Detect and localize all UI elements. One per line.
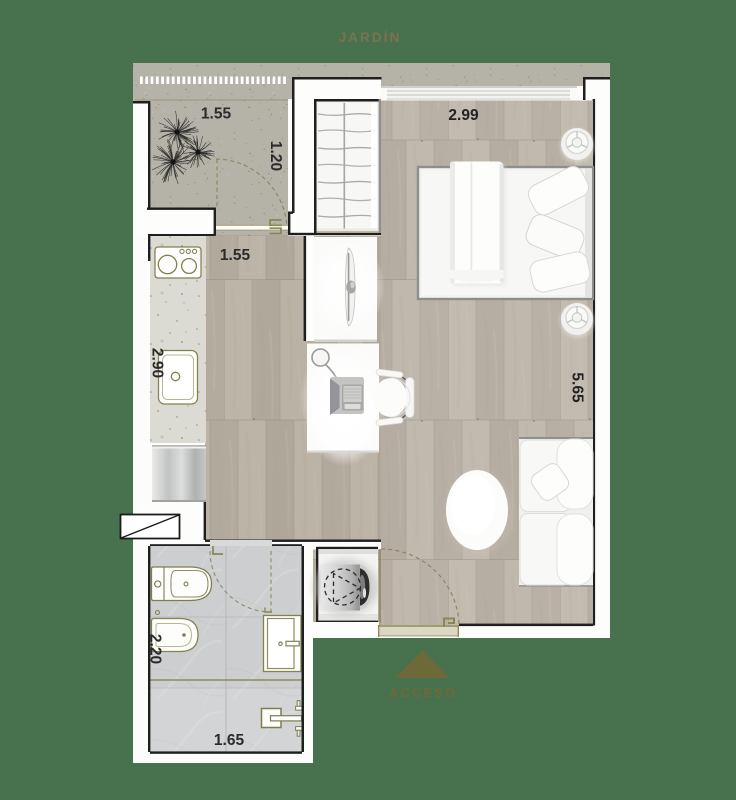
svg-text:5.65: 5.65 <box>569 372 586 403</box>
svg-text:JARDÍN: JARDÍN <box>339 30 402 45</box>
svg-text:1.55: 1.55 <box>220 247 251 264</box>
svg-text:1.20: 1.20 <box>267 141 284 171</box>
svg-text:1.55: 1.55 <box>201 106 232 123</box>
svg-text:ACCESO: ACCESO <box>389 686 457 701</box>
svg-text:2.99: 2.99 <box>448 107 479 124</box>
svg-text:2.90: 2.90 <box>149 348 166 378</box>
svg-text:1.65: 1.65 <box>214 732 245 749</box>
svg-text:2.20: 2.20 <box>147 634 164 664</box>
